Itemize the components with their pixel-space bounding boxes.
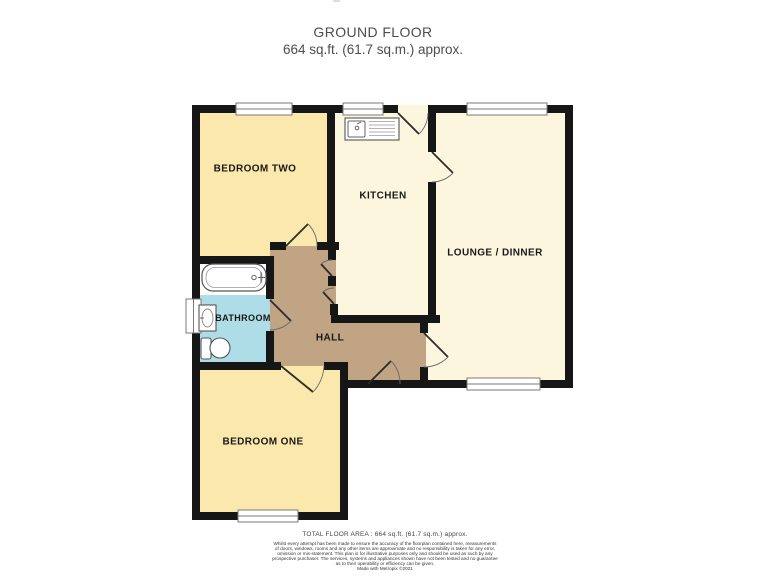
bedroom-two-floor (196, 105, 335, 260)
kitchen-sink-icon (345, 118, 399, 140)
room-label-bedroom-two: BEDROOM TWO (214, 164, 297, 175)
toilet-icon (201, 338, 230, 359)
room-label-lounge: LOUNGE / DINNER (447, 248, 542, 259)
room-label-hall: HALL (316, 333, 344, 344)
bedroom-one-window (238, 510, 298, 522)
bedroom-two-window (236, 103, 292, 115)
floorplan-drawing (0, 0, 768, 576)
lounge-window-top (467, 103, 547, 115)
room-label-bathroom: BATHROOM (215, 313, 271, 323)
credit-line: Made with Metropix ©2021 (272, 566, 498, 571)
plan-footer: TOTAL FLOOR AREA : 664 sq.ft. (61.7 sq.m… (272, 531, 498, 572)
total-floor-area: TOTAL FLOOR AREA : 664 sq.ft. (61.7 sq.m… (272, 531, 498, 538)
room-label-bedroom-one: BEDROOM ONE (222, 437, 303, 448)
lounge-floor (426, 105, 573, 388)
room-label-kitchen: KITCHEN (359, 191, 406, 202)
bathtub-icon (202, 264, 266, 291)
disclaimer-text: Whilst every attempt has been made to en… (272, 541, 498, 566)
kitchen-window (343, 103, 383, 115)
basin-icon (199, 305, 216, 331)
floorplan-page: GROUND FLOOR 664 sq.ft. (61.7 sq.m.) app… (0, 0, 768, 576)
lounge-window-bottom (467, 378, 540, 390)
